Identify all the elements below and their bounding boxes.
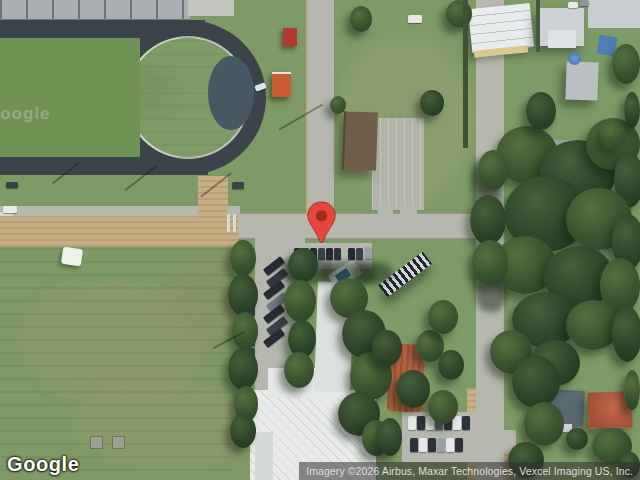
car <box>232 182 244 189</box>
tree <box>288 248 318 282</box>
tree <box>526 92 556 130</box>
street-horizontal <box>232 213 498 239</box>
hedge-line <box>536 0 540 52</box>
utility-box <box>112 436 125 449</box>
car <box>417 416 425 430</box>
orange-shed <box>272 72 291 97</box>
tree <box>420 90 444 116</box>
field-house-building <box>342 111 378 170</box>
car <box>408 416 416 430</box>
school-entrance <box>255 432 273 480</box>
tree <box>446 0 472 28</box>
tree <box>512 356 560 408</box>
parking-lot-north <box>372 118 424 210</box>
tree <box>396 370 430 408</box>
tree <box>284 352 314 388</box>
fence-gate <box>233 214 236 232</box>
car <box>6 182 18 188</box>
dirt-connector <box>198 176 228 218</box>
car <box>410 438 418 452</box>
dirt-strip <box>0 216 238 247</box>
car <box>446 438 454 452</box>
utility-box <box>90 436 103 449</box>
tree <box>372 330 402 366</box>
car <box>348 248 355 260</box>
tree <box>600 120 626 150</box>
tree <box>478 150 508 190</box>
fence-gate <box>227 214 230 232</box>
car <box>356 248 363 260</box>
google-logo[interactable]: Google <box>7 453 80 476</box>
tree <box>428 300 458 334</box>
pin-core <box>316 210 327 221</box>
house-roof <box>548 30 576 48</box>
car <box>326 248 333 260</box>
stadium-pavement <box>188 0 234 16</box>
car <box>568 2 578 8</box>
tree <box>330 96 346 114</box>
tree <box>438 350 464 380</box>
swimming-pool <box>568 52 581 65</box>
map-canvas[interactable]: Google Google Imagery ©2026 Airbus, Maxa… <box>0 0 640 480</box>
track-dzone <box>208 56 254 130</box>
grandstand-bleachers <box>0 0 190 20</box>
car <box>419 438 427 452</box>
tree <box>472 240 508 286</box>
tree <box>230 414 256 448</box>
tree <box>284 280 316 322</box>
tree <box>566 428 588 450</box>
car <box>462 416 470 430</box>
tree <box>612 306 640 362</box>
tree <box>228 274 258 316</box>
tree <box>612 44 640 84</box>
driveway-stub <box>400 206 417 216</box>
tree <box>624 370 640 410</box>
tree <box>378 418 402 456</box>
pin-body <box>308 202 335 243</box>
tree <box>350 6 372 32</box>
location-pin-icon[interactable] <box>306 201 337 245</box>
house-roof <box>588 0 640 28</box>
car <box>334 248 341 260</box>
tile-watermark: Google <box>0 104 51 124</box>
tree <box>228 348 258 390</box>
tree <box>230 240 256 276</box>
car <box>365 247 372 259</box>
tree <box>470 195 506 245</box>
car <box>408 15 422 23</box>
red-shed <box>283 28 297 46</box>
tree <box>524 402 564 446</box>
gazebo <box>61 247 83 267</box>
driveway-stub <box>378 206 393 216</box>
car <box>437 438 445 452</box>
car <box>580 0 589 6</box>
car <box>455 438 463 452</box>
tree <box>428 390 458 424</box>
tree <box>624 92 640 128</box>
attribution-text: Imagery ©2026 Airbus, Maxar Technologies… <box>306 465 633 477</box>
hedge-line <box>463 0 468 148</box>
car <box>428 438 436 452</box>
football-field <box>0 38 140 157</box>
car <box>3 206 17 213</box>
shed-building <box>565 61 598 100</box>
attribution-bar: Imagery ©2026 Airbus, Maxar Technologies… <box>299 462 640 480</box>
